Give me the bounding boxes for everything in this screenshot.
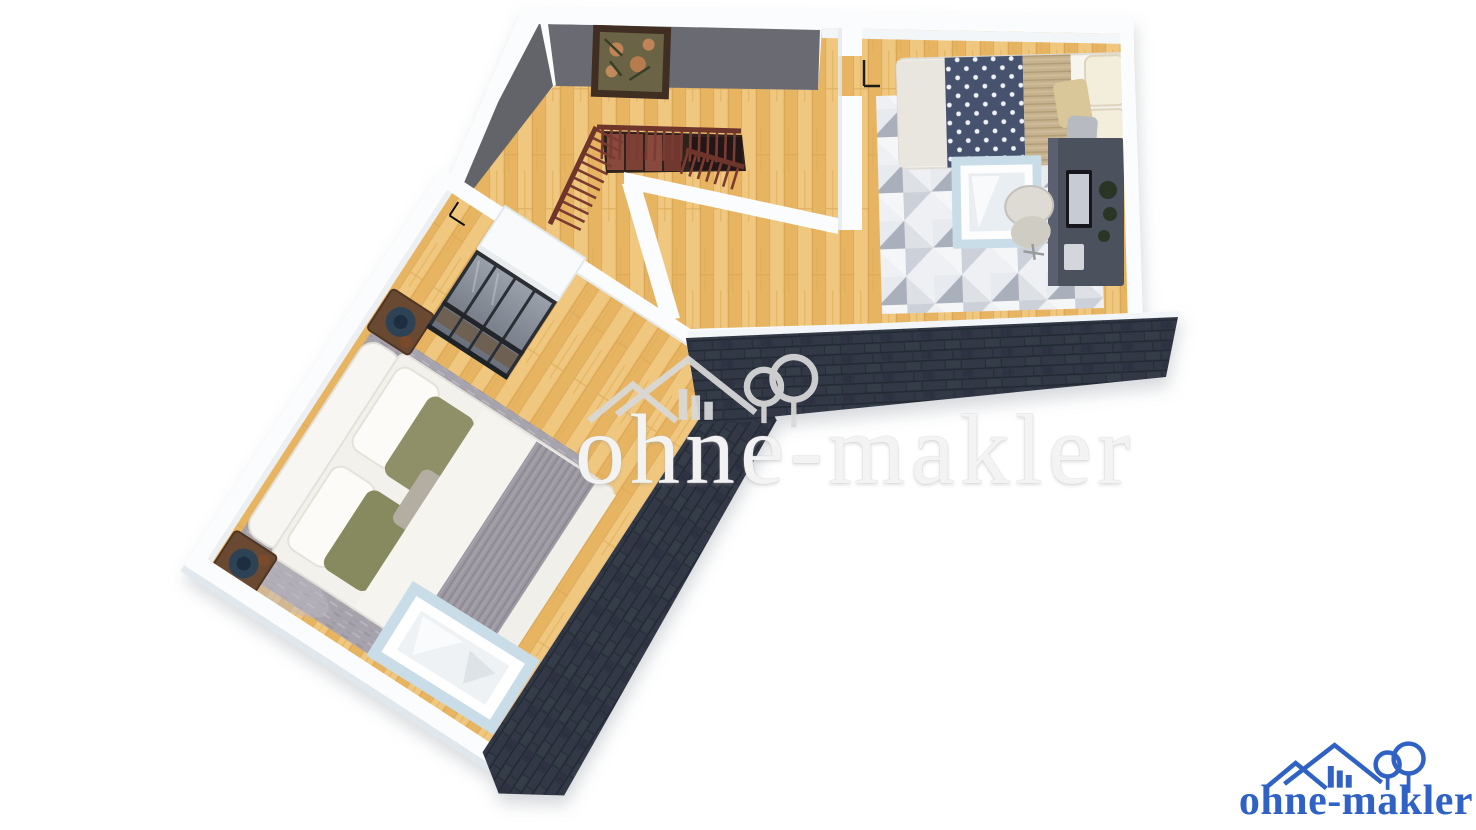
brand-logo-text: ohne-makler <box>1236 780 1476 822</box>
keyboard <box>1064 244 1084 270</box>
pillow <box>1085 55 1126 106</box>
duvet-fold <box>897 60 950 167</box>
duvet-navy-dotted <box>945 56 1026 168</box>
accent-wall-north <box>548 24 820 90</box>
desk <box>1048 138 1124 286</box>
desk-plant <box>1099 181 1117 199</box>
framed-picture <box>591 25 671 100</box>
watermark-text: ohne-makler <box>575 400 1135 500</box>
floorplan-render: ohne-makler ohne-makler <box>0 0 1476 830</box>
